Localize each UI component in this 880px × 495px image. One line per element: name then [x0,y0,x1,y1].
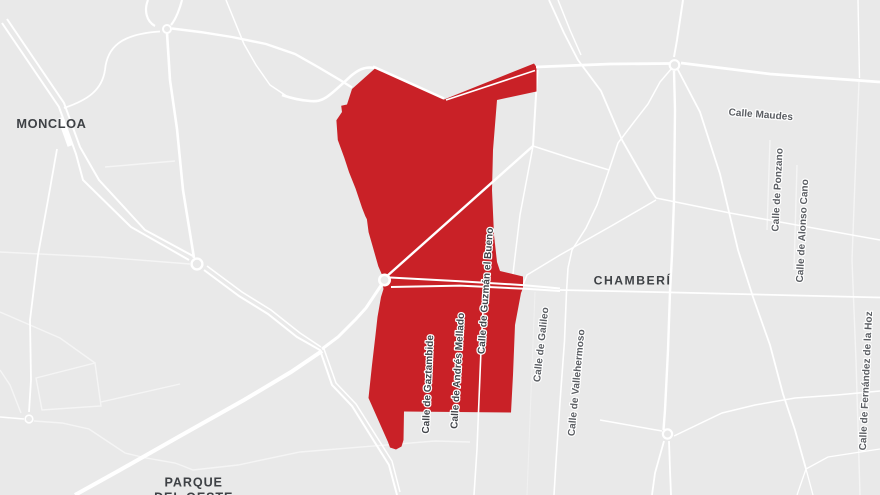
svg-text:PARQUE: PARQUE [165,476,223,490]
svg-text:CHAMBERÍ: CHAMBERÍ [594,273,672,288]
svg-text:MONCLOA: MONCLOA [16,116,86,131]
svg-text:DEL OESTE: DEL OESTE [154,491,233,495]
